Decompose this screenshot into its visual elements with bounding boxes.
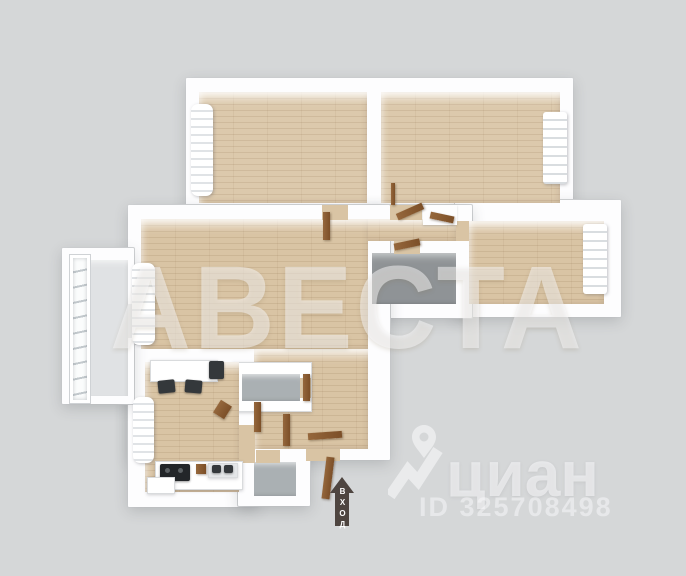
balcony-floor xyxy=(88,260,128,396)
radiator xyxy=(583,224,607,294)
chair xyxy=(184,379,202,393)
room-top-right-floor xyxy=(381,92,560,203)
balcony-window xyxy=(70,255,90,403)
portal-watermark: циан xyxy=(446,442,599,506)
curtains xyxy=(191,104,213,196)
burner xyxy=(165,468,170,473)
entrance-label: ВХОД xyxy=(338,487,346,531)
curtains xyxy=(132,263,155,345)
chair xyxy=(157,379,175,394)
entrance-arrow: ВХОД xyxy=(330,477,354,527)
door-panel xyxy=(323,212,330,240)
entrance-arrow-shaft: ВХОД xyxy=(335,492,349,526)
cutting-board xyxy=(196,464,206,474)
cian-logo-icon xyxy=(388,424,444,500)
listing-id-watermark: ID 325708498 xyxy=(419,492,613,523)
chair xyxy=(209,361,224,379)
door-panel xyxy=(283,414,290,446)
bathroom-floor xyxy=(372,253,456,304)
burner xyxy=(178,468,183,473)
closet-floor xyxy=(254,462,296,496)
floor-plan-image: АВЕСТА циан ID 325708498 ВХОД xyxy=(0,0,686,576)
radiator xyxy=(543,112,567,184)
toilet-floor xyxy=(242,374,300,401)
doorway-entrance xyxy=(306,449,340,461)
door-panel xyxy=(303,374,310,401)
living-room-floor xyxy=(141,219,368,349)
door-panel xyxy=(391,183,395,205)
sink-basin xyxy=(212,465,221,473)
kitchen-table xyxy=(150,360,218,382)
doorway-kitchen xyxy=(239,425,255,463)
sink-basin xyxy=(224,465,233,473)
doorway-closet xyxy=(256,450,280,463)
kitchen-appliance xyxy=(147,477,175,494)
door-panel xyxy=(254,402,261,432)
room-top-left-floor xyxy=(199,92,367,203)
doorway-right-room xyxy=(456,221,469,241)
curtains xyxy=(133,397,154,463)
